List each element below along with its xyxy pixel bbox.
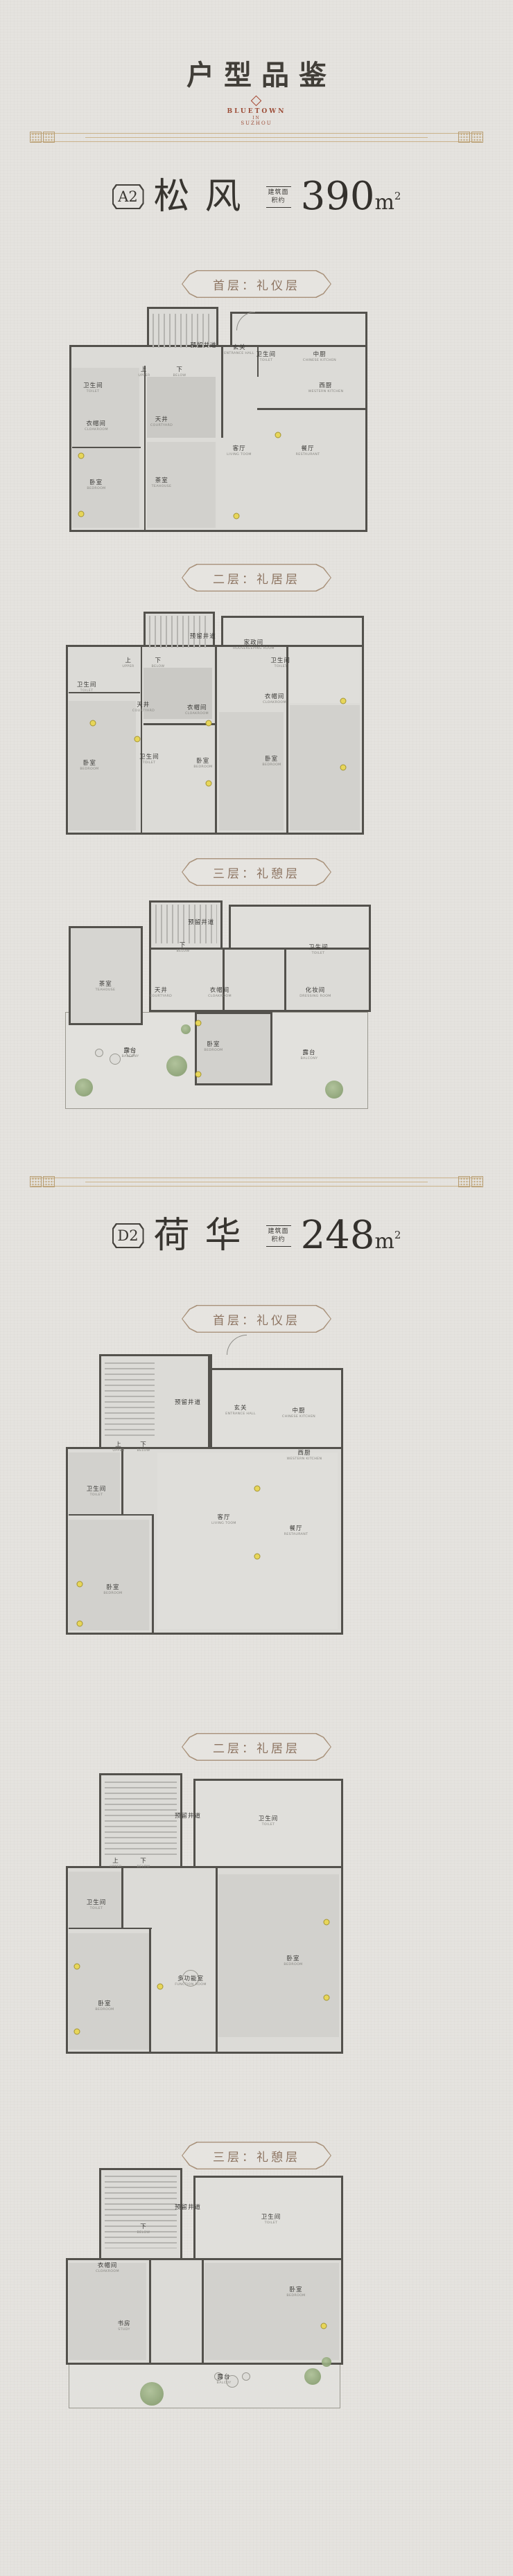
divider-ornament-left [30, 132, 55, 143]
room-label: 衣帽间CLOAKROOM [180, 703, 214, 717]
wall [149, 2258, 151, 2365]
room-label: 衣帽间CLOAKROOM [90, 2261, 125, 2275]
room-shade [69, 1453, 120, 1514]
floorplan-d2-floor2: 预留井道卫生间TOILET上UPPER下BELOW卫生间TOILET多功能室FU… [66, 1773, 343, 2054]
spotlight-dot [206, 780, 212, 786]
floor-label-a2-2: 二层：礼居层 [182, 564, 331, 592]
divider-midline [85, 1182, 428, 1182]
room-label: 卧室BEDROOM [76, 758, 103, 772]
wall [144, 366, 146, 533]
room-label: 上UPPER [120, 656, 137, 670]
floorplan-a2-floor1: 预留井道玄关ENTRANCE HALL卫生间TOILET中厨CHINESE KI… [69, 307, 367, 532]
room-label: 预留井道 [190, 632, 216, 640]
room-shade [157, 1453, 338, 1629]
room-label: 卫生间TOILET [77, 680, 97, 694]
room-label: 玄关ENTRANCE HALL [218, 1403, 263, 1417]
stairs [105, 1782, 177, 1857]
unit-badge: D2 [112, 1223, 144, 1248]
room-label: 预留井道 [175, 2203, 201, 2211]
spotlight-dot [324, 1919, 330, 1925]
unit-name: 松风 [154, 179, 256, 215]
wall [72, 447, 141, 449]
plan-footprint [229, 905, 371, 952]
plant [75, 1078, 93, 1096]
plant [140, 2382, 164, 2406]
wall [152, 1514, 154, 1635]
wall [223, 948, 225, 1012]
brochure-page: { "header": { "title": "户型品鉴", "brand_li… [0, 0, 513, 2576]
room-label: 西厨WESTERN KITCHEN [279, 1448, 331, 1462]
room-label: 卫生间TOILET [308, 943, 329, 957]
room-label: 露台BALCONY [297, 1048, 322, 1062]
wall [284, 948, 286, 1012]
wall [286, 645, 288, 835]
room-label: 上UPPER [135, 365, 153, 379]
floor-label-a2-1: 首层：礼仪层 [182, 270, 331, 298]
room-shade [205, 2263, 339, 2360]
area-value: 390m2 [301, 179, 401, 215]
floorplan-d2-floor1: 预留井道玄关ENTRANCE HALL中厨CHINESE KITCHEN上UPP… [66, 1354, 343, 1635]
room-label: 卧室BEDROOM [258, 754, 286, 768]
room-label: 下BELOW [148, 656, 168, 670]
plan-footprint [149, 948, 371, 1012]
room-label: 中厨CHINESE KITCHEN [295, 350, 345, 364]
room-label: 卫生间TOILET [270, 656, 290, 670]
room-label: 卧室BEDROOM [82, 478, 110, 492]
wall [144, 723, 215, 725]
floor-label-d2-1: 首层：礼仪层 [182, 1305, 331, 1333]
room-label: 上UPPER [107, 1856, 124, 1870]
page-title: 户型品鉴 [0, 53, 513, 93]
room-label: 下BELOW [134, 1856, 153, 1870]
spotlight-dot [157, 1983, 164, 1989]
room-label: 卫生间TOILET [87, 1898, 107, 1912]
room-label: 预留井道 [190, 341, 216, 349]
area-value: 248m2 [301, 1218, 401, 1254]
wall [69, 1928, 152, 1930]
floor-label-d2-3: 三层：礼憩层 [182, 2142, 331, 2169]
floor-label-d2-2: 二层：礼居层 [182, 1733, 331, 1761]
room-label: 卫生间TOILET [139, 752, 159, 766]
spotlight-dot [89, 720, 96, 727]
section-divider [31, 133, 482, 142]
room-label: 下BELOW [134, 2222, 153, 2236]
wall [257, 408, 367, 410]
room-label: 上UPPER [110, 1440, 127, 1454]
room-label: 茶室TEAHOUSE [147, 476, 176, 490]
plant [325, 1081, 343, 1099]
plant [304, 2368, 321, 2385]
room-label: 卫生间TOILET [83, 381, 103, 395]
room-label: 家政间HOUSEKEEPING ROOM [223, 638, 284, 652]
room-label: 卧室BEDROOM [279, 1954, 307, 1968]
section-title-d2: D2 荷华 建筑面积约 248m2 [0, 1218, 513, 1254]
spotlight-dot [324, 1995, 330, 2001]
spotlight-dot [340, 698, 346, 704]
wall [149, 1928, 151, 2054]
room-shade [69, 2263, 146, 2360]
stairs [105, 2176, 177, 2248]
spotlight-dot [321, 2322, 327, 2329]
brand-line-1: BLUETOWN [0, 108, 513, 115]
plant [166, 1056, 187, 1076]
room-label: 卫生间TOILET [256, 350, 277, 364]
spotlight-dot [254, 1486, 261, 1492]
room-label: 卫生间TOILET [259, 1814, 279, 1828]
room-shade [290, 648, 360, 704]
spotlight-dot [340, 765, 346, 771]
brand-line-2: IN [0, 116, 513, 121]
wall [215, 645, 217, 835]
spotlight-dot [275, 432, 281, 438]
door-arc [227, 1335, 247, 1355]
unit-name: 荷华 [154, 1218, 256, 1254]
unit-badge: A2 [112, 184, 144, 209]
room-label: 露台BALCOY [214, 2372, 235, 2386]
stairs [105, 1362, 155, 1438]
room-shade [69, 1933, 149, 2050]
room-label: 天井COURTYARD [146, 415, 178, 429]
room-label: 预留井道 [175, 1398, 201, 1406]
spotlight-dot [195, 1072, 201, 1078]
room-label: 卫生间TOILET [261, 2212, 281, 2226]
divider-ornament-right [458, 1176, 483, 1187]
divider-midline [85, 137, 428, 138]
plan-footprint [69, 926, 143, 1025]
spotlight-dot [74, 2028, 80, 2034]
spotlight-dot [77, 1581, 83, 1588]
spotlight-dot [134, 736, 141, 742]
terrace [69, 2360, 340, 2408]
wall [216, 1866, 218, 2054]
spotlight-dot [206, 720, 212, 727]
spotlight-dot [74, 1964, 80, 1970]
room-label: 天井COURTYARD [127, 700, 159, 714]
room-label: 多功能室FUNCTION ROOM [167, 1974, 214, 1988]
room-label: 天井COURTYARD [145, 986, 177, 1000]
diamond-icon [251, 96, 262, 107]
room-label: 玄关ENTRANCE HALL [217, 343, 261, 357]
room-shade [219, 712, 283, 830]
wall [210, 1354, 212, 1447]
room-label: 下BELOW [170, 365, 189, 379]
spotlight-dot [78, 452, 85, 459]
room-label: 中厨CHINESE KITCHEN [275, 1406, 324, 1420]
room-shade [290, 705, 360, 830]
room-label: 卧室BEDROOM [189, 756, 217, 770]
room-label: 露台BALCONY [117, 1046, 143, 1060]
room-label: 化妆间DRESSING ROOM [292, 986, 338, 1000]
room-label: 衣帽间CLOAKROOM [202, 986, 237, 1000]
plant [181, 1024, 191, 1034]
wall [121, 1866, 123, 1928]
room-label: 预留井道 [188, 918, 214, 926]
wall [202, 2258, 204, 2365]
terrace-chair [95, 1049, 103, 1057]
floorplan-d2-floor3: 预留井道下BELOW卫生间TOILET衣帽间CLOAKROOM书房STUDY卧室… [66, 2168, 343, 2410]
room-label: 卫生间TOILET [87, 1484, 107, 1498]
divider-ornament-left [30, 1176, 55, 1187]
wall [141, 645, 143, 835]
room-label: 书房STUDY [115, 2319, 133, 2333]
spotlight-dot [77, 1620, 83, 1626]
room-label: 卧室BEDROOM [282, 2285, 310, 2299]
room-shade [69, 1520, 149, 1631]
room-label: 卧室BEDROOM [200, 1040, 227, 1054]
room-label: 卧室BEDROOM [99, 1583, 127, 1597]
divider-ornament-right [458, 132, 483, 143]
room-label: 西厨WESTERN KITCHEN [299, 381, 351, 395]
floor-label-a2-3: 三层：礼憩层 [182, 858, 331, 886]
section-divider [31, 1178, 482, 1187]
wall [69, 1514, 152, 1516]
room-label: 客厅LIVING TOOM [206, 1513, 243, 1527]
area-note: 建筑面积约 [266, 186, 291, 208]
floorplan-a2-floor3: 茶室TEAHOUSE预留井道下BELOW卫生间TOILET天井COURTYARD… [62, 900, 371, 1115]
terrace-chair [242, 2372, 250, 2381]
floorplan-a2-floor2: 预留井道家政间HOUSEKEEPING ROOM卫生间TOILET上UPPER下… [66, 612, 364, 835]
room-label: 预留井道 [175, 1811, 201, 1820]
spotlight-dot [78, 511, 85, 517]
wall [221, 345, 223, 437]
room-label: 餐厅RESTAURANT [290, 444, 325, 458]
spotlight-dot [233, 513, 239, 519]
room-label: 餐厅RESTAURANT [278, 1524, 313, 1538]
room-label: 下BELOW [173, 941, 193, 954]
spotlight-dot [195, 1020, 201, 1026]
wall [121, 1447, 123, 1514]
plant [322, 2357, 331, 2367]
room-label: 客厅LIVING TOOM [221, 444, 258, 458]
room-label: 茶室TEAHOUSE [91, 979, 120, 993]
room-label: 衣帽间CLOAKROOM [79, 419, 114, 433]
room-label: 衣帽间CLOAKROOM [257, 692, 292, 706]
brand-line-3: SUZHOU [0, 121, 513, 126]
section-title-a2: A2 松风 建筑面积约 390m2 [0, 179, 513, 215]
spotlight-dot [254, 1553, 261, 1559]
room-label: 卧室BEDROOM [91, 1999, 119, 2013]
room-label: 下BELOW [134, 1440, 153, 1454]
area-note: 建筑面积约 [266, 1225, 291, 1247]
